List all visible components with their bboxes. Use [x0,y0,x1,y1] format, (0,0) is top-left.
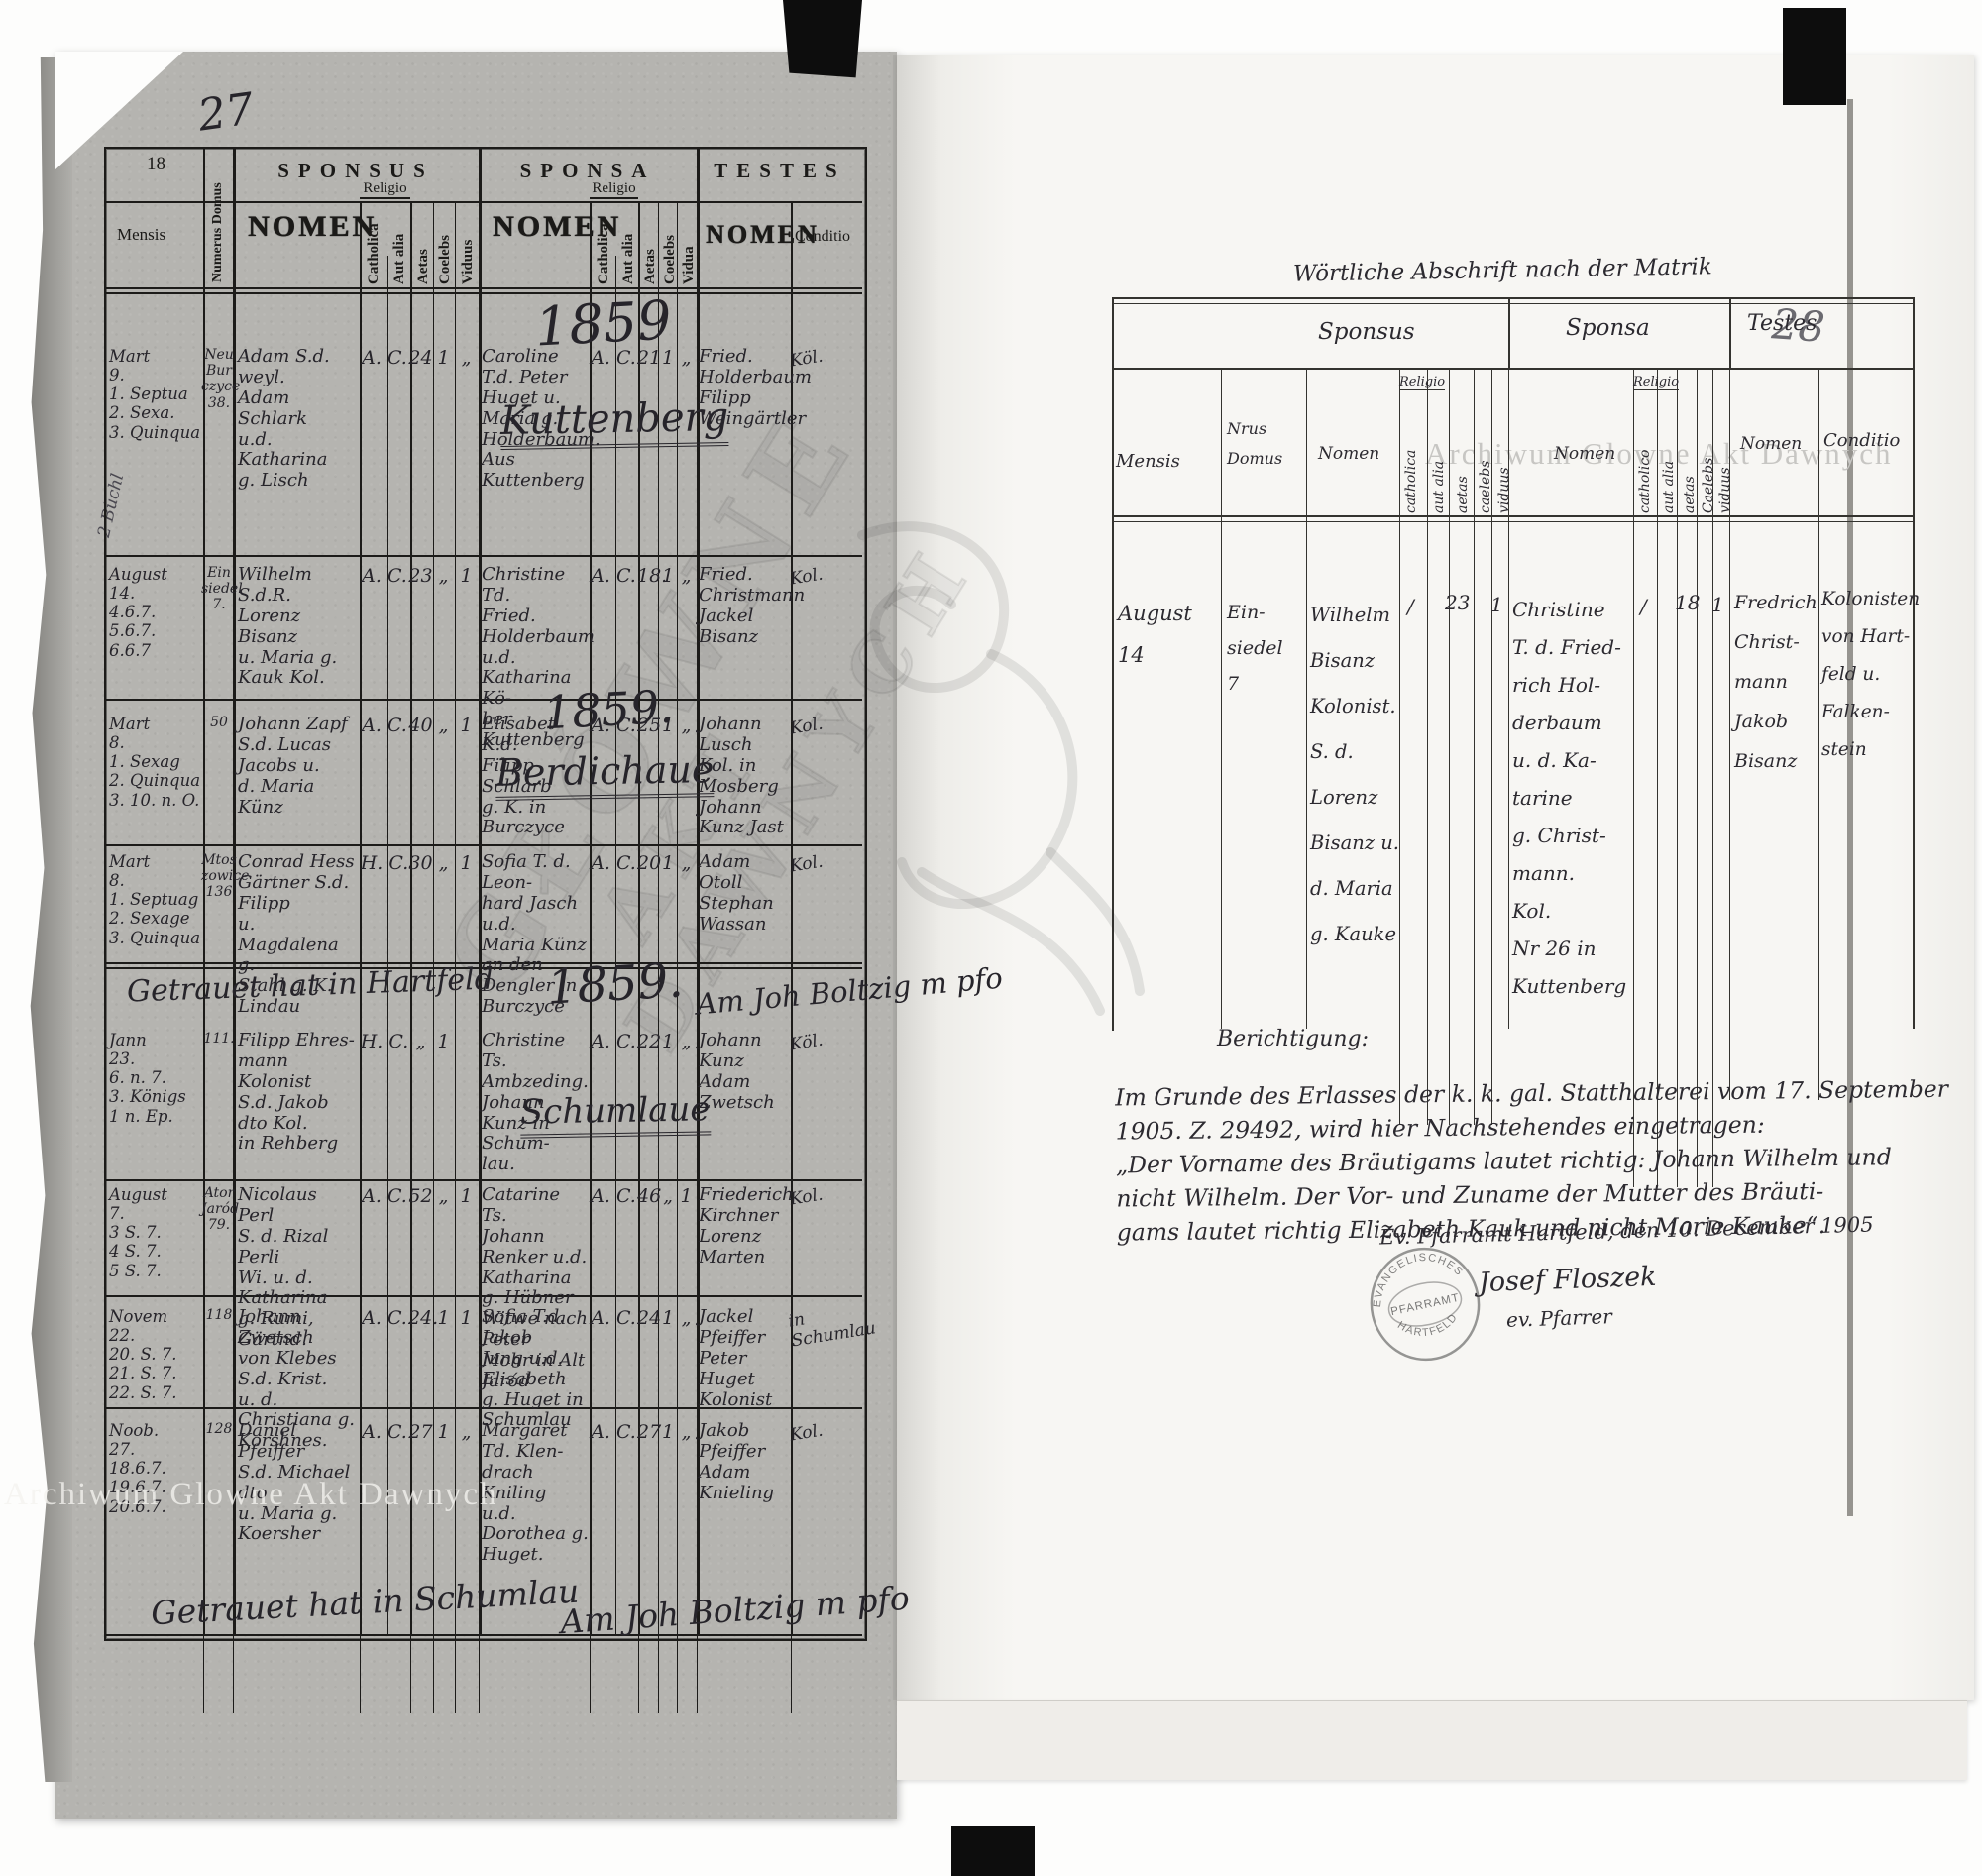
cell-sponsus-coelebs: 1 [431,1307,456,1329]
cell-testes-name: Johann Kunz Adam Zwetsch [699,1031,790,1114]
grid-line-stub [479,1636,480,1713]
cell-sponsa-vidua: 1 [676,1185,697,1207]
signature-title: ev. Pfarrer [1506,1304,1613,1332]
cell-sponsa-name: Sofia T. d. Leon- hard Jasch u.d. Maria … [482,852,589,1018]
grid-line [105,1639,862,1641]
aetas-sponsa-label: Aetas [642,249,659,284]
catholica-sponsus-label: Catholica [366,223,383,284]
cell-sponsus-name: Filipp Ehres- mann Kolonist S.d. Jakob d… [238,1031,358,1155]
hand-grid-line [1508,297,1510,369]
cell-sponsus-coelebs: 1 [431,347,456,369]
testes-section-header: TESTES [699,159,861,183]
cell-sponsa-aetas: 18. [637,565,659,587]
r-nrus-domus-label: Nrus Domus [1227,414,1282,474]
cell-sponsa-name: Christine Ts. Ambzeding. Johann Kunz in … [482,1031,589,1175]
r-record-domus: Ein- siedel 7 [1227,595,1283,702]
hand-grid-line [1677,369,1678,1187]
hand-grid-line [1112,368,1915,370]
cell-sponsa-aetas: 22 [637,1031,659,1052]
marriage-record-row: Mart 8. 1. Sexag 2. Quinqua 3. 10. n. O.… [0,701,1982,844]
scanned-archive-spread: GŁÓWNE AKT DAWNYCH 27 2 Büchl 18 SPONSUS… [0,0,1982,1876]
r-aut-alia-sponsus-label: aut alia [1431,461,1447,513]
cell-mensis: Jann 23. 6. n. 7. 3. Königs 1 n. Ep. [109,1031,202,1126]
cell-sponsa-aetas: 24 [637,1307,659,1329]
r-record-testes-name: Fredrich Christ- mann Jakob Bisanz [1734,583,1821,781]
grid-line-stub [233,1636,234,1713]
cell-conditio: Kol. [789,559,862,590]
cell-sponsus-coelebs: 1 [431,1421,456,1443]
cell-sponsus-aetas: 23 [408,565,433,587]
cell-domus: 128 [201,1421,237,1437]
cell-mensis: August 7. 3 S. 7. 4 S. 7. 5 S. 7. [109,1185,202,1280]
cell-sponsa-religio: A. C. [588,1307,639,1329]
numerus-domus-column-label: Numerus Domus [210,182,226,282]
cell-sponsus-aetas: 30 [408,852,433,874]
cell-sponsa-religio: A. C. [588,347,639,369]
r-vidua-sponsa-label: viduus [1717,467,1733,513]
grid-line-stub [791,1636,792,1713]
cell-sponsus-coelebs: 1 [431,1031,456,1052]
r-viduus-sponsus-label: viduus [1496,467,1512,513]
cell-conditio: Kol. [789,1415,862,1446]
r-record-sponsus-aetas: 23 [1445,591,1470,614]
hand-grid-line [1112,297,1915,299]
cell-sponsa-vidua: „ [676,1307,697,1329]
cell-sponsus-aetas: 24. [408,1307,433,1329]
marriage-record-row: Mart 8. 1. Septuag 2. Sexage 3. QuinquaM… [0,846,1982,963]
cell-domus: 118 [201,1307,237,1323]
cell-sponsus-religio: H. C. [358,852,411,874]
r-aut-alia-sponsa-label: aut alia [1661,461,1677,513]
cell-mensis: Mart 8. 1. Septuag 2. Sexage 3. Quinqua [109,852,202,947]
cell-domus: Mtos zowice 136 [201,852,237,901]
mensis-column-label: Mensis [117,225,165,245]
grid-line-stub [455,1636,456,1713]
cell-sponsus-viduus: 1 [454,1307,479,1329]
cell-conditio: Kol. [789,846,862,877]
cell-sponsus-name: Adam S.d. weyl. Adam Schlark u.d. Kathar… [238,347,358,492]
cell-sponsus-name: Daniel Pfeiffer S.d. Michael dto u. Mari… [238,1421,358,1545]
cell-sponsus-aetas: 24 [408,347,433,369]
coelebs-sponsa-label: Coelebs [662,235,679,284]
cell-sponsus-name: Wilhelm S.d.R. Lorenz Bisanz u. Maria g.… [238,565,358,689]
cell-sponsus-coelebs: „ [431,565,456,587]
r-nomen-testes-label: Nomen [1740,434,1802,454]
r-record-sponsa-catholica: / [1640,595,1647,618]
marriage-record-row: Novem 22. 20. S. 7. 21. S. 7. 22. S. 7.1… [0,1297,1982,1407]
cell-sponsa-religio: A. C. [588,565,639,587]
cell-sponsus-viduus: „ [454,347,479,369]
cell-sponsa-vidua: „ [676,715,697,736]
nomen-sponsus-label: NOMEN [248,210,377,244]
cell-sponsa-aetas: 27 [637,1421,659,1443]
cell-mensis: Noob. 27. 18.6.7. 19.6.7. 20.6.7. [109,1421,202,1516]
cell-conditio: in Schumlau [787,1302,863,1352]
cell-sponsus-viduus: 1 [454,852,479,874]
r-sponsus-header: Sponsus [1318,319,1415,345]
hand-grid-line [1657,369,1658,1187]
religio-sponsus-label: Religio [360,180,410,199]
grid-line-stub [658,1636,659,1713]
cell-testes-name: Fried. Christmann Jackel Bisanz [699,565,790,648]
signature-name: Josef Floszek [1479,1262,1658,1298]
r-record-sponsus-viduus: 1 [1490,593,1503,616]
cell-sponsa-aetas: 21 [637,347,659,369]
cell-sponsus-religio: A. C. [358,1307,411,1329]
aut-alia-sponsus-label: Aut alia [391,234,408,284]
cell-mensis: Mart 8. 1. Sexag 2. Quinqua 3. 10. n. O. [109,715,202,810]
cell-sponsus-coelebs: „ [431,1185,456,1207]
viduus-sponsus-label: Viduus [460,240,477,284]
cell-domus: Ator Jaród 79. [201,1185,237,1234]
cell-testes-name: Johann Lusch Kol. in Mosberg Johann Kunz… [699,715,790,838]
aetas-sponsus-label: Aetas [415,249,432,284]
cell-sponsa-name: Margaret Td. Klen- drach Kniling u.d. Do… [482,1421,589,1566]
catholica-sponsa-label: Catholica [596,223,612,284]
cell-sponsus-viduus: „ [454,1421,479,1443]
cell-conditio: Köl. [789,1025,862,1055]
coelebs-sponsus-label: Coelebs [437,235,454,284]
grid-line [105,287,862,289]
underlying-sheet-edge [897,1700,1967,1780]
marriage-record-row: Noob. 27. 18.6.7. 19.6.7. 20.6.7.128Dani… [0,1409,1982,1634]
cell-testes-name: Jakob Pfeiffer Adam Knieling [699,1421,790,1504]
cell-sponsa-religio: A. C. [588,1031,639,1052]
r-nomen-sponsa-label: Nomen [1554,444,1615,464]
grid-line-stub [697,1636,698,1713]
r-sponsa-header: Sponsa [1566,315,1650,341]
cell-sponsus-aetas: 40 [408,715,433,736]
printed-page-number: 18 [147,154,165,175]
r-aetas-sponsa-label: aetas [1682,476,1698,513]
cell-sponsus-religio: A. C. [358,1185,411,1207]
cell-sponsa-vidua: „ [676,1421,697,1443]
cell-sponsa-religio: A. C. [588,852,639,874]
hand-grid-line [1221,369,1222,1029]
cell-domus: 111. [201,1031,237,1047]
cell-sponsa-vidua: „ [676,1031,697,1052]
cell-sponsus-religio: A. C. [358,715,411,736]
corner-page-number: 27 [195,83,258,141]
cell-sponsa-aetas: 25 [637,715,659,736]
r-caelebs-sponsa-label: Caelebs [1701,458,1716,513]
r-catholica-sponsus-label: catholica [1403,450,1419,513]
cell-sponsus-viduus: 1 [454,715,479,736]
hand-grid-line [1112,303,1915,304]
hand-grid-line [1306,369,1307,1029]
right-black-ribbon [1783,8,1846,105]
cell-sponsus-coelebs: „ [431,715,456,736]
cell-sponsus-religio: H. C. [358,1031,411,1052]
cell-sponsa-aetas: 20 [637,852,659,874]
parish-stamp: EVANGELISCHES PFARRAMT HARTFELD [1357,1234,1493,1374]
r-conditio-label: Conditio [1823,430,1900,451]
cell-mensis: Novem 22. 20. S. 7. 21. S. 7. 22. S. 7. [109,1307,202,1402]
grid-line-stub [410,1636,411,1713]
top-black-ribbon [783,0,862,79]
cell-conditio: Köl. [789,341,862,372]
cell-sponsa-vidua: „ [676,347,697,369]
r-aetas-sponsus-label: aetas [1455,476,1471,513]
r-record-sponsus-catholica: / [1407,595,1414,618]
hand-grid-line [1449,369,1450,1125]
r-record-sponsa-aetas: 18 [1675,591,1700,614]
hand-grid-line [1112,515,1915,517]
cell-conditio: Kol. [789,1179,862,1210]
cell-sponsa-religio: A. C. [588,1421,639,1443]
r-testes-header: Testes [1747,311,1817,336]
cell-sponsus-religio: A. C. [358,1421,411,1443]
hand-grid-line [1112,521,1915,522]
cell-sponsus-aetas: 52 [408,1185,433,1207]
r-record-sponsus-name: Wilhelm Bisanz Kolonist. S. d. Lorenz Bi… [1310,593,1403,957]
cell-sponsus-viduus: 1 [454,565,479,587]
r-religio-sponsa-label: Religio [1633,375,1679,390]
cell-sponsus-name: Conrad Hess Gärtner S.d. Filipp u. Magda… [238,852,358,1018]
cell-sponsus-name: Johann Zapf S.d. Lucas Jacobs u. d. Mari… [238,715,358,818]
r-record-testes-conditio: Kolonisten von Hart- feld u. Falken- ste… [1821,581,1915,769]
cell-testes-name: Jackel Pfeiffer Peter Huget Kolonist [699,1307,790,1410]
cell-domus: Ein siedel 7. [201,565,237,613]
cell-sponsa-aetas: 46 [637,1185,659,1207]
religio-sponsa-label: Religio [590,180,638,199]
cell-testes-name: Friederich Kirchner Lorenz Marten [699,1185,790,1269]
hand-grid-line [1112,297,1114,1031]
r-caelebs-sponsus-label: caelebs [1478,461,1493,513]
r-record-sponsa-caelebs: 1 [1711,593,1724,616]
grid-line-stub [590,1636,591,1713]
cell-sponsus-religio: A. C. [358,347,411,369]
cell-sponsus-aetas: 27 [408,1421,433,1443]
hand-grid-line [1633,369,1634,1187]
cell-sponsa-religio: A. C. [588,1185,639,1207]
hand-grid-line [1729,297,1731,369]
sponsus-section-header: SPONSUS [235,159,477,183]
cell-sponsa-vidua: „ [676,565,697,587]
grid-line-stub [677,1636,678,1713]
sponsa-section-header: SPONSA [481,159,695,183]
cell-conditio: Kol. [789,709,862,739]
cell-testes-name: Fried. Holderbaum Filipp Weingärtler [699,347,790,430]
cell-mensis: Mart 9. 1. Septua 2. Sexa. 3. Quinqua [109,347,202,442]
bottom-black-ribbon [951,1826,1035,1876]
cell-sponsus-coelebs: „ [431,852,456,874]
r-catholica-sponsa-label: catholico [1637,450,1653,513]
grid-line [105,1634,862,1636]
r-religio-sponsus-label: Religio [1399,375,1445,390]
hand-grid-line [1474,369,1475,1125]
cell-sponsa-name: Caroline T.d. Peter Huget u. Maria g. Ho… [482,347,589,492]
grid-line-stub [433,1636,434,1713]
r-nomen-sponsus-label: Nomen [1318,444,1379,464]
marriage-record-row: August 14. 4.6.7. 5.6.7. 6.6.7Ein siedel… [0,557,1982,699]
hand-grid-line [1427,369,1428,1125]
cell-sponsa-name: Elisabet K.d. Filipp Schlarb g. K. in Bu… [482,715,589,838]
berichtigung-label: Berichtigung: [1217,1027,1369,1051]
cell-mensis: August 14. 4.6.7. 5.6.7. 6.6.7 [109,565,202,660]
cell-sponsus-aetas: „ [408,1031,433,1052]
r-record-mensis: August 14 [1118,593,1192,676]
vidua-sponsa-label: Vidua [681,246,698,284]
grid-line-stub [203,1636,204,1713]
cell-sponsa-vidua: „ [676,852,697,874]
aut-alia-sponsa-label: Aut alia [620,234,637,284]
cell-testes-name: Adam Otoll Stephan Wassan [699,852,790,936]
cell-domus: Neu Bur czyce 38. [201,347,237,411]
grid-line-stub [360,1636,361,1713]
grid-line-stub [638,1636,639,1713]
cell-sponsa-religio: A. C. [588,715,639,736]
r-mensis-label: Mensis [1116,451,1180,472]
cell-sponsus-religio: A. C. [358,565,411,587]
conditio-column-label: Conditio [795,228,850,246]
r-record-sponsa-name: Christine T. d. Fried- rich Hol- derbaum… [1512,591,1633,1005]
cell-sponsus-viduus: 1 [454,1185,479,1207]
cell-domus: 50 [201,715,237,730]
